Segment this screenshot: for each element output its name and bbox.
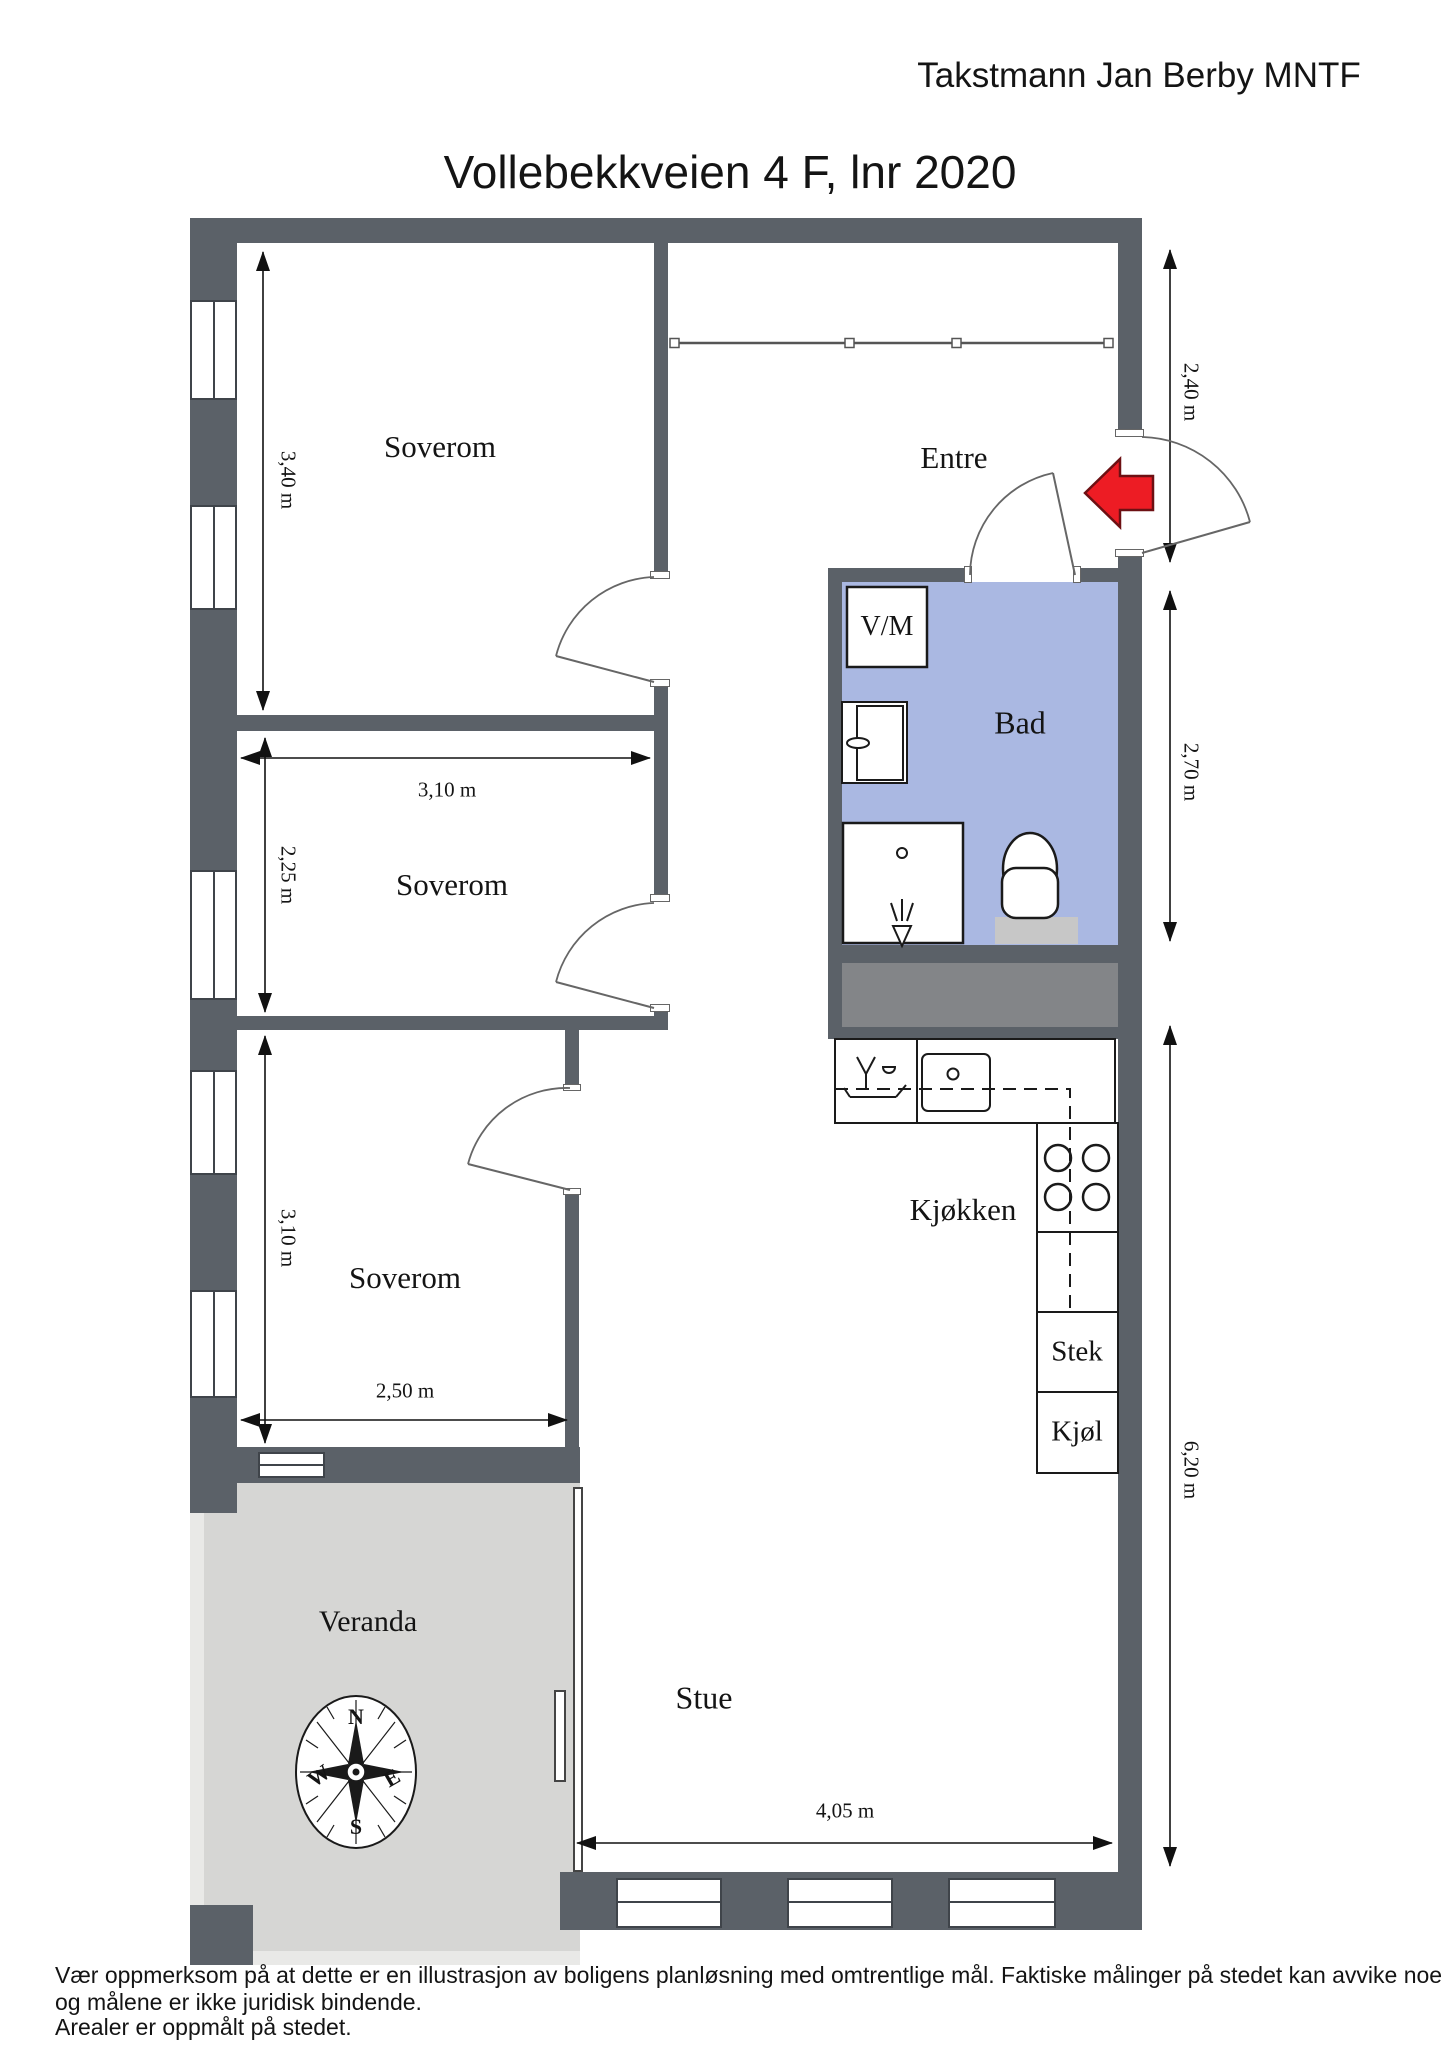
room-label-soverom3: Soverom [349,1260,461,1296]
dim-label-stue-width: 4,05 m [816,1799,874,1824]
page-title: Vollebekkveien 4 F, lnr 2020 [444,145,1017,199]
dim-label-entre-depth: 2,40 m [1179,363,1204,421]
entry-door-leaf [1142,522,1250,553]
dim-label-bad-depth: 2,70 m [1179,743,1204,801]
bathroom-door-leaf [1053,473,1075,575]
compass-letter-s: S [350,1814,362,1840]
dim-label-bedroom2-width: 3,10 m [418,778,476,803]
appraiser-header: Takstmann Jan Berby MNTF [917,56,1360,96]
fixture-label-washing-machine: V/M [861,611,914,643]
entrance-arrow-icon [1085,459,1153,527]
room-label-stue: Stue [676,1680,733,1717]
disclaimer-line1: Vær oppmerksom på at dette er en illustr… [55,1962,1442,1989]
entry-door-arc [1142,437,1250,522]
kitchen-box-empty [1037,1232,1118,1312]
fixture-label-fridge: Kjøl [1051,1416,1103,1449]
room-label-kjokken: Kjøkken [910,1192,1017,1228]
dim-label-bedroom3-width: 2,50 m [376,1379,434,1404]
dim-label-bedroom1-height: 3,40 m [276,451,301,509]
dim-label-living-depth: 6,20 m [1179,1441,1204,1499]
dim-label-bedroom3-height: 3,10 m [276,1209,301,1267]
disclaimer-line3: Arealer er oppmålt på stedet. [55,2014,352,2041]
bedroom3-door-arc [468,1088,570,1164]
floorplan-page: Takstmann Jan Berby MNTF Vollebekkveien … [0,0,1448,2048]
bath-sink-icon [842,702,907,783]
bedroom2-door-arc [556,903,654,982]
bathroom-door-arc [970,473,1053,575]
kitchen-basin-icon [922,1054,990,1111]
room-label-bad: Bad [994,705,1046,742]
room-label-entre: Entre [920,440,987,476]
room-label-soverom2: Soverom [396,867,508,903]
fixture-label-oven: Stek [1051,1336,1103,1369]
room-label-veranda: Veranda [319,1605,417,1639]
toilet-icon [1002,833,1058,918]
bedroom2-door-leaf [556,982,654,1008]
shower-icon [843,823,963,946]
bedroom1-door-leaf [556,656,654,682]
dim-label-bedroom2-height: 2,25 m [276,846,301,904]
room-label-soverom1: Soverom [384,429,496,465]
bedroom1-door-arc [556,577,654,656]
floorplan-vector-layer [0,0,1448,2048]
compass-letter-n: N [348,1704,364,1730]
disclaimer-line2: og målene er ikke juridisk bindende. [55,1989,422,2016]
kitchen-fixtures [835,1039,1118,1473]
wardrobe-rail [670,339,1113,348]
bedroom3-door-leaf [468,1164,570,1190]
cooktop-box [1037,1123,1118,1232]
